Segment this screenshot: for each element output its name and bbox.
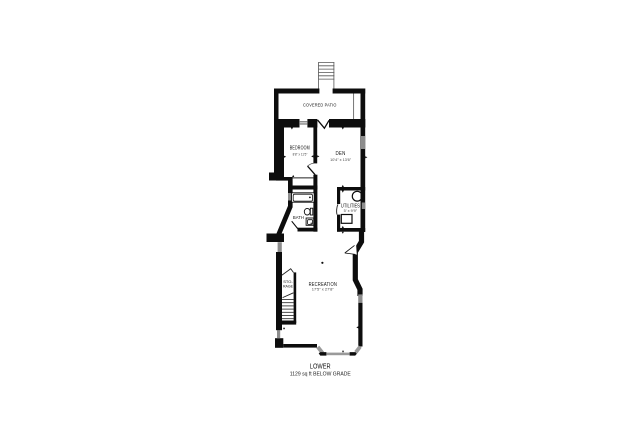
svg-text:1129 sq ft BELOW GRADE: 1129 sq ft BELOW GRADE: [290, 372, 352, 378]
svg-text:8'8" x 11'5": 8'8" x 11'5": [293, 153, 308, 157]
svg-text:LOWER: LOWER: [310, 361, 331, 370]
svg-text:17'5" x 27'8": 17'5" x 27'8": [312, 288, 335, 292]
svg-text:10'4" x 13'6": 10'4" x 13'6": [330, 158, 352, 162]
svg-text:5' x 9'9": 5' x 9'9": [344, 208, 358, 213]
svg-text:RAGE: RAGE: [283, 284, 293, 288]
svg-text:COVERED PATIO: COVERED PATIO: [303, 102, 337, 107]
svg-text:BEDROOM: BEDROOM: [290, 145, 310, 151]
svg-text:BATH: BATH: [293, 215, 304, 220]
svg-text:DEN: DEN: [336, 151, 346, 157]
